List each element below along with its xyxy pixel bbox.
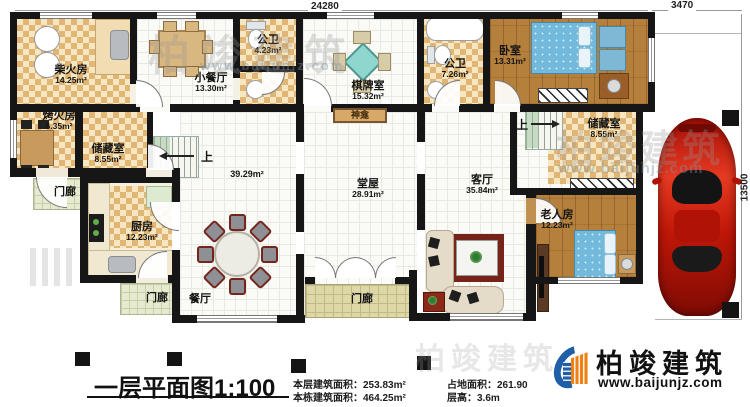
window [648, 38, 655, 82]
burner-icon [93, 219, 99, 225]
chair-icon [202, 40, 213, 54]
burner-icon [93, 230, 99, 236]
window [327, 12, 374, 19]
room-label-bedroom: 卧室13.31m² [475, 45, 545, 66]
room-label-main-hall: 堂屋28.91m² [333, 178, 403, 199]
wall [172, 168, 180, 202]
stairs-up-label-left: 上 [198, 148, 216, 165]
sink-icon [110, 30, 129, 60]
stairs-up-arrowhead [552, 120, 560, 128]
chair-icon [353, 31, 371, 44]
stair-flight-hatch [538, 88, 588, 103]
chair-icon [229, 214, 246, 231]
stairs-up-arrow [166, 155, 194, 157]
chair-icon [185, 21, 199, 32]
wall [305, 277, 315, 284]
wall [510, 188, 643, 195]
floor-plan: 神龛 [0, 0, 750, 407]
chair-icon [197, 246, 214, 263]
dimension-right: 13500 [740, 155, 750, 221]
dining-table-icon [158, 30, 206, 68]
room-label-small-dining: 小餐厅13.30m² [176, 72, 246, 93]
shrine-label: 神龛 [351, 110, 369, 120]
wall [296, 12, 303, 104]
window [558, 277, 620, 284]
lamp-icon [607, 79, 621, 93]
chair-icon [163, 66, 177, 77]
door-opening [36, 168, 68, 177]
dimension-carport: 3470 [668, 0, 696, 11]
wall [417, 174, 425, 230]
wall [296, 112, 304, 142]
room-label-living: 客厅35.84m² [447, 174, 517, 195]
table-icon [20, 130, 54, 166]
chair-icon [261, 246, 278, 263]
brand-url: www.baijunjz.com [598, 375, 723, 390]
window [450, 313, 523, 321]
porch-label-bottom-left: 门廊 [122, 289, 192, 305]
stairs-up-arrowhead [159, 152, 167, 160]
dimension-line-carport [652, 10, 742, 11]
stat-floor-height: 层高：3.6m [447, 389, 500, 404]
window [157, 12, 196, 19]
room-label-mahjong: 棋牌室15.32m² [333, 80, 403, 101]
porch-label-entrance: 门廊 [327, 290, 397, 306]
sheet-square [291, 359, 306, 373]
chair-icon [149, 40, 160, 54]
room-label-storage-right: 储藏室8.55m² [569, 118, 639, 139]
room-label-storage-left: 储藏室8.55m² [73, 143, 143, 164]
watermark-brand: 柏竣建筑 [415, 334, 559, 378]
wardrobe-icon [599, 26, 626, 48]
window [197, 315, 277, 323]
pillow-icon [578, 48, 591, 68]
column-marker [722, 302, 739, 318]
sheet-square [167, 352, 182, 366]
chair-icon [333, 53, 346, 71]
pillow-icon [578, 26, 591, 46]
car-image [652, 118, 742, 316]
stairs-up-arrow [531, 123, 553, 125]
lamp-icon [621, 258, 633, 270]
brand-logo: 柏竣建筑 www.baijunjz.com [552, 334, 748, 400]
column-marker [722, 110, 739, 126]
window [10, 120, 17, 158]
window [40, 12, 92, 19]
sink-icon [108, 256, 136, 273]
wall [417, 12, 424, 104]
sheet-square [417, 356, 431, 370]
chair-icon [163, 21, 177, 32]
sheet-square [75, 352, 90, 366]
wardrobe-icon [599, 49, 626, 71]
wall [172, 250, 180, 323]
stove-circle-icon [34, 26, 60, 52]
watermark-logo [30, 248, 76, 286]
title-underline [87, 396, 289, 398]
stat-total-area: 本栋建筑面积：464.25m² [293, 389, 406, 404]
dimension-top: 24280 [308, 1, 342, 12]
pillow-icon [604, 254, 616, 275]
chair-icon [378, 53, 391, 71]
wall [296, 254, 304, 323]
bathtub-icon [426, 17, 484, 41]
room-label-kitchen: 厨房12.23m² [107, 221, 177, 242]
shrine-table: 神龛 [333, 108, 387, 123]
room-label-firewood: 柴火房14.25m² [36, 64, 106, 85]
room-label-bath-small: 公卫4.23m² [238, 34, 298, 55]
pillow-icon [604, 233, 616, 254]
window [562, 12, 598, 19]
plant-icon [470, 251, 482, 263]
room-label-elder: 老人房12.23m² [522, 209, 592, 230]
wall [296, 174, 304, 232]
stairs-up-label-right: 上 [513, 116, 531, 133]
wall [417, 112, 425, 142]
brand-logo-icon [556, 342, 594, 392]
round-table-icon [214, 231, 260, 277]
pillow-icon [428, 255, 440, 267]
porch-label-left: 门廊 [30, 183, 100, 199]
plant-icon [428, 296, 437, 305]
room-label-hall-area: 39.29m² [212, 169, 282, 179]
room-label-heating: 烤火房6.35m² [24, 110, 94, 131]
